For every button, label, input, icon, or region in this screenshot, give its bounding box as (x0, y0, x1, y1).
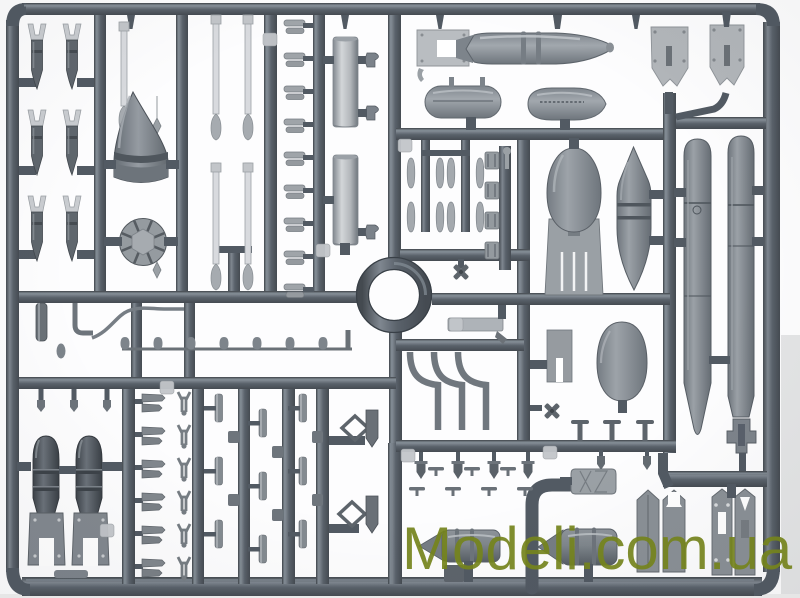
svg-text:Modeli.com.ua: Modeli.com.ua (402, 515, 793, 582)
